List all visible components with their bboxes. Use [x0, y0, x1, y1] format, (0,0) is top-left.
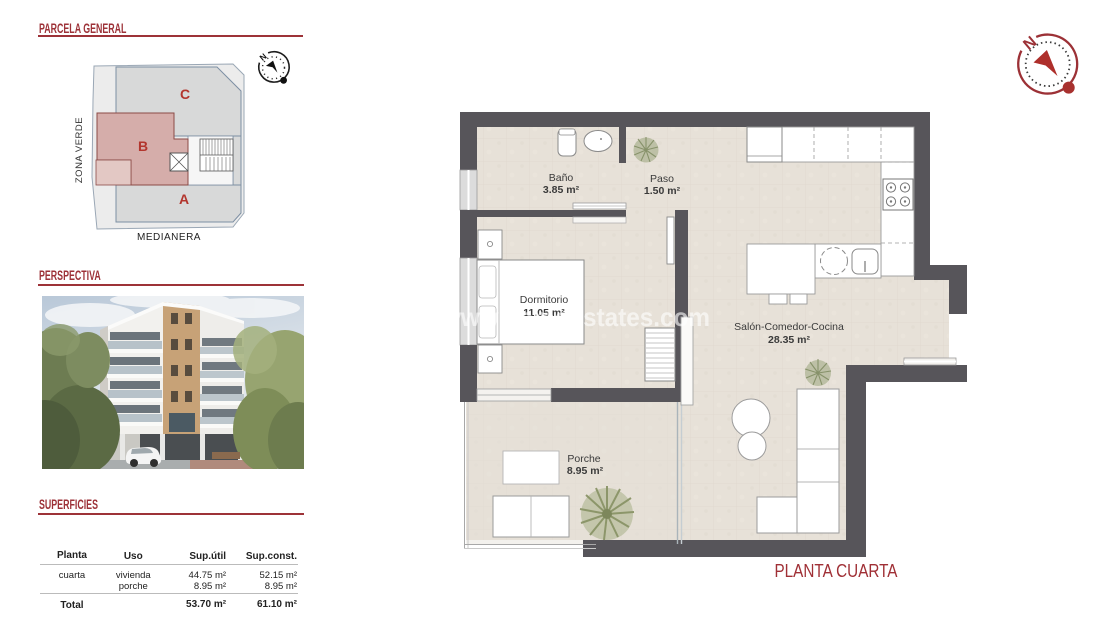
svg-text:Baño: Baño — [549, 172, 574, 184]
svg-text:Paso: Paso — [650, 173, 674, 185]
svg-text:3.85 m²: 3.85 m² — [543, 184, 580, 196]
svg-text:N: N — [257, 51, 268, 63]
svg-text:B: B — [138, 138, 148, 154]
svg-text:A: A — [179, 191, 189, 207]
svg-text:MEDIANERA: MEDIANERA — [137, 232, 201, 243]
svg-text:ZONA VERDE: ZONA VERDE — [74, 117, 85, 183]
svg-text:1.50 m²: 1.50 m² — [644, 185, 681, 197]
svg-text:C: C — [180, 86, 190, 102]
svg-text:www.immoestates.com: www.immoestates.com — [441, 302, 710, 332]
svg-text:PLANTA CUARTA: PLANTA CUARTA — [775, 560, 899, 581]
svg-text:28.35 m²: 28.35 m² — [768, 334, 811, 346]
svg-text:8.95 m²: 8.95 m² — [567, 465, 604, 477]
svg-text:Porche: Porche — [567, 453, 600, 465]
svg-text:Salón-Comedor-Cocina: Salón-Comedor-Cocina — [734, 321, 844, 333]
